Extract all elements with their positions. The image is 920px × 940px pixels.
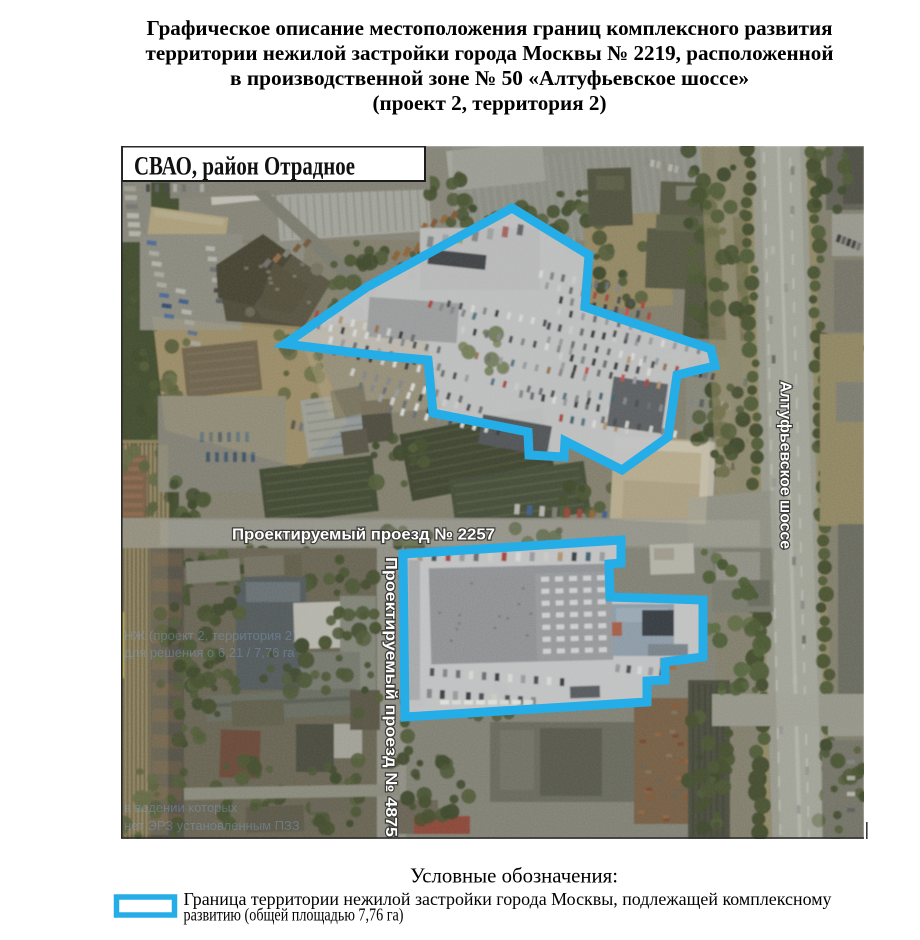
svg-text:Графическое описание местополо: Графическое описание местоположения гран…: [147, 16, 833, 40]
svg-text:СВАО, район Отрадное: СВАО, район Отрадное: [134, 152, 355, 181]
svg-text:для решения о 6,21 / 7,76 га: для решения о 6,21 / 7,76 га: [124, 645, 295, 660]
svg-text:территории нежилой застройки г: территории нежилой застройки города Моск…: [146, 41, 834, 65]
svg-text:развитию (общей площадью 7,76: развитию (общей площадью 7,76 га): [184, 905, 404, 925]
svg-text:нет ЭРЗ установленным ПЗЗ: нет ЭРЗ установленным ПЗЗ: [124, 818, 300, 833]
svg-text:в производственной зоне № 50 «: в производственной зоне № 50 «Алтуфьевск…: [230, 66, 749, 90]
svg-text:в ведении которых: в ведении которых: [124, 800, 238, 815]
svg-text:НЖ (проект 2, территория 2): НЖ (проект 2, территория 2): [124, 628, 296, 643]
svg-text:Алтуфьевское шоссе: Алтуфьевское шоссе: [777, 381, 794, 549]
svg-text:Проектируемый проезд № 2257: Проектируемый проезд № 2257: [232, 527, 495, 544]
svg-text:Условные обозначения:: Условные обозначения:: [410, 864, 618, 888]
svg-text:Проектируемый проезд № 4875: Проектируемый проезд № 4875: [382, 557, 399, 837]
svg-text:(проект 2, территория 2): (проект 2, территория 2): [373, 91, 607, 115]
